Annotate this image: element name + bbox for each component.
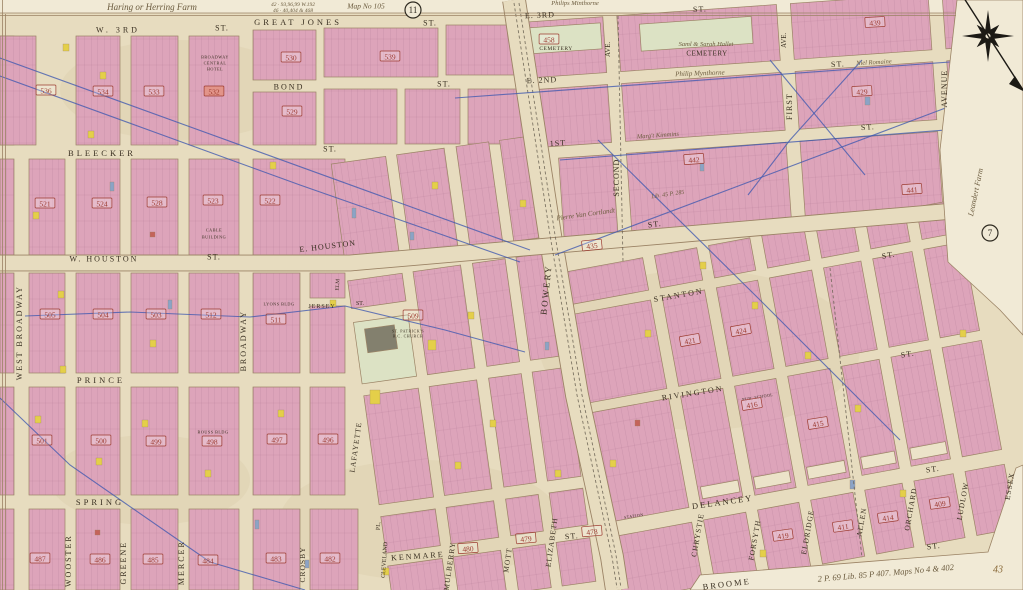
street-label: WOOSTER — [64, 534, 73, 587]
block-number: 487 — [30, 553, 50, 564]
street-label: AVENUE — [940, 70, 949, 108]
blue-lot-spot — [545, 342, 549, 350]
yellow-lot-spot — [96, 458, 102, 465]
street-label: BROADWAY — [239, 310, 248, 372]
svg-text:486: 486 — [94, 556, 106, 565]
farm-annotation: Haring or Herring Farm — [106, 2, 197, 12]
block-number: 497 — [267, 434, 287, 445]
svg-text:521: 521 — [39, 200, 51, 209]
yellow-lot-spot — [960, 330, 966, 337]
city-block — [253, 509, 300, 590]
street-label: WEST BROADWAY — [15, 285, 24, 380]
block-number: 509 — [403, 310, 423, 321]
yellow-lot-spot — [855, 405, 861, 412]
svg-text:528: 528 — [151, 199, 163, 208]
street-label: CROSBY — [298, 546, 307, 582]
yellow-lot-spot — [205, 470, 211, 477]
city-block — [446, 501, 499, 544]
svg-text:482: 482 — [324, 555, 336, 564]
street-label: GREENE — [119, 541, 128, 585]
svg-text:441: 441 — [906, 185, 918, 195]
farm-annotation: Saml & Sarah Hallet — [679, 41, 734, 48]
city-block — [189, 509, 239, 590]
svg-text:534: 534 — [97, 88, 109, 97]
street-label: ST. — [925, 464, 940, 475]
yellow-lot-spot — [60, 366, 66, 373]
svg-text:522: 522 — [264, 197, 276, 206]
svg-text:429: 429 — [856, 87, 868, 97]
yellow-lot-spot — [610, 460, 616, 467]
yellow-lot-spot — [428, 340, 436, 350]
city-block — [189, 159, 239, 255]
yellow-lot-spot — [370, 390, 380, 404]
blue-lot-spot — [865, 97, 870, 105]
svg-text:478: 478 — [586, 527, 598, 537]
svg-text:523: 523 — [207, 197, 219, 206]
building-label: CENTRAL — [204, 60, 227, 65]
city-block — [29, 273, 65, 373]
yellow-lot-spot — [700, 262, 706, 269]
street-label: ST. — [831, 59, 845, 69]
block-number: 534 — [93, 86, 113, 97]
block-number: 479 — [516, 532, 537, 544]
block-number: 529 — [282, 106, 302, 117]
svg-text:497: 497 — [271, 436, 283, 445]
street-label: ST. — [926, 541, 941, 552]
building-label: CABLE — [206, 227, 222, 232]
street-label: AVE. — [780, 32, 788, 47]
red-lot-spot — [150, 232, 155, 237]
block-number: 486 — [90, 554, 110, 565]
yellow-lot-spot — [150, 340, 156, 347]
blue-lot-spot — [110, 182, 114, 191]
street-label: E. 3RD — [525, 10, 555, 20]
svg-text:498: 498 — [206, 438, 218, 447]
city-block — [76, 273, 120, 373]
building-label: BUILDING — [202, 234, 226, 239]
farm-annotation: Philips Minthorne — [550, 0, 599, 7]
yellow-lot-spot — [33, 212, 39, 219]
building-label: CEMETERY — [539, 46, 572, 52]
building-label: ROUSS BLDG — [198, 429, 229, 434]
yellow-lot-spot — [805, 352, 811, 359]
block-number: 533 — [144, 86, 164, 97]
atlas-map[interactable]: 117W. 3RDST.GREAT JONESST.BONDST.BLEECKE… — [0, 0, 1023, 590]
street-label: PL. — [376, 521, 383, 530]
street-label: ST. — [565, 531, 579, 541]
svg-text:536: 536 — [40, 87, 52, 96]
svg-text:530: 530 — [285, 54, 297, 63]
block-number: 484 — [198, 555, 218, 566]
svg-text:529: 529 — [286, 108, 298, 117]
block-number: 485 — [143, 554, 163, 565]
street-label: GREAT JONES — [254, 17, 342, 27]
street-label: ST. — [323, 145, 337, 154]
city-block — [790, 0, 932, 59]
block-number: 480 — [458, 542, 478, 554]
svg-text:409: 409 — [934, 499, 947, 510]
block-number: 532 — [204, 86, 224, 97]
svg-text:505: 505 — [44, 311, 56, 320]
city-block — [381, 509, 441, 553]
building-label: R.C. CHURCH — [393, 333, 424, 338]
red-lot-spot — [95, 530, 100, 535]
street-label: MERCER — [177, 540, 186, 585]
svg-text:480: 480 — [462, 544, 474, 554]
street-label: FIRST — [785, 93, 794, 120]
block-number: 512 — [201, 309, 221, 320]
city-block — [310, 306, 345, 373]
svg-text:532: 532 — [208, 88, 220, 97]
yellow-lot-spot — [58, 291, 64, 298]
city-block — [131, 273, 178, 373]
yellow-lot-spot — [278, 410, 284, 417]
svg-text:458: 458 — [543, 36, 555, 45]
atlas-map-canvas[interactable]: 117W. 3RDST.GREAT JONESST.BONDST.BLEECKE… — [0, 0, 1023, 590]
svg-text:512: 512 — [205, 311, 217, 320]
yellow-lot-spot — [88, 131, 94, 138]
city-block — [131, 509, 178, 590]
block-number: 441 — [902, 183, 922, 195]
svg-text:504: 504 — [97, 311, 109, 320]
city-block — [556, 538, 596, 586]
svg-text:499: 499 — [150, 438, 162, 447]
block-number: 458 — [539, 34, 559, 45]
yellow-lot-spot — [555, 470, 561, 477]
svg-text:416: 416 — [746, 400, 759, 411]
block-number: 524 — [92, 198, 112, 209]
street-label: ST. — [437, 80, 451, 89]
street-label: BLEECKER — [68, 148, 136, 158]
block-number: 504 — [93, 309, 113, 320]
city-block — [506, 494, 544, 535]
svg-text:533: 533 — [148, 88, 160, 97]
svg-text:439: 439 — [869, 18, 881, 28]
block-number: 478 — [582, 525, 603, 537]
blue-lot-spot — [700, 163, 704, 171]
street-label: ST. — [693, 4, 707, 14]
building-label: BROADWAY — [201, 54, 229, 59]
block-number: 521 — [35, 198, 55, 209]
yellow-lot-spot — [35, 416, 41, 423]
yellow-lot-spot — [100, 72, 106, 79]
city-block — [622, 72, 786, 141]
svg-text:503: 503 — [150, 311, 162, 320]
street-label: SPRING — [76, 497, 124, 507]
blue-lot-spot — [168, 300, 172, 309]
farm-annotation: 46 · 40,404 & 468 — [273, 7, 313, 14]
yellow-lot-spot — [432, 182, 438, 189]
city-block — [324, 89, 397, 144]
city-block — [76, 509, 120, 590]
svg-text:511: 511 — [271, 316, 282, 325]
city-block — [559, 154, 619, 244]
svg-text:509: 509 — [407, 312, 419, 321]
block-number: 482 — [320, 553, 340, 564]
yellow-lot-spot — [752, 302, 758, 309]
handwritten-note: 43 — [993, 564, 1003, 575]
svg-text:500: 500 — [95, 437, 107, 446]
block-number: 483 — [266, 553, 286, 564]
block-number: 501 — [32, 435, 52, 446]
red-lot-spot — [635, 420, 640, 426]
plate-number: 11 — [409, 5, 418, 15]
block-number: 496 — [318, 434, 338, 445]
city-block — [453, 550, 507, 590]
yellow-lot-spot — [455, 462, 461, 469]
svg-text:419: 419 — [777, 531, 790, 542]
svg-text:442: 442 — [688, 155, 700, 165]
block-number: 439 — [865, 16, 885, 28]
building-label: HOTEL — [207, 66, 223, 71]
city-block — [253, 92, 316, 145]
street-label: ST. — [207, 253, 221, 262]
block-number: 503 — [146, 309, 166, 320]
street-label: ST. — [356, 301, 365, 307]
block-number: 499 — [146, 436, 166, 447]
block-number: 523 — [203, 195, 223, 206]
city-block — [189, 273, 239, 373]
street-label: ST. — [423, 19, 437, 28]
street-label: W. HOUSTON — [70, 255, 139, 264]
svg-text:524: 524 — [96, 200, 108, 209]
street-label: ST. — [215, 24, 229, 33]
yellow-lot-spot — [520, 200, 526, 207]
street-label: E. 2ND — [527, 75, 558, 85]
svg-text:484: 484 — [202, 557, 214, 566]
svg-text:415: 415 — [812, 419, 825, 430]
block-number: 429 — [852, 85, 872, 97]
yellow-lot-spot — [142, 420, 148, 427]
city-block — [405, 89, 460, 144]
svg-text:501: 501 — [36, 437, 48, 446]
svg-text:496: 496 — [322, 436, 334, 445]
block-number: 498 — [202, 436, 222, 447]
street-label: 1ST — [549, 138, 566, 148]
city-block — [468, 89, 525, 144]
blue-lot-spot — [352, 208, 356, 218]
block-number: 442 — [684, 153, 704, 165]
svg-text:487: 487 — [34, 555, 46, 564]
block-number: 536 — [36, 85, 56, 96]
svg-text:485: 485 — [147, 556, 159, 565]
svg-text:414: 414 — [882, 513, 895, 524]
svg-text:483: 483 — [270, 555, 282, 564]
block-number: 522 — [260, 195, 280, 206]
svg-text:411: 411 — [837, 522, 849, 532]
yellow-lot-spot — [468, 312, 474, 319]
blue-lot-spot — [255, 520, 259, 529]
street-label: BOND — [274, 83, 305, 92]
yellow-lot-spot — [645, 330, 651, 337]
yellow-lot-spot — [270, 162, 276, 169]
street-label: ST. — [647, 219, 662, 230]
street-label: ST. — [861, 122, 875, 132]
building-label: LYONS BLDG — [264, 301, 295, 306]
street-label: W. 3RD — [96, 26, 140, 35]
farm-annotation: Map No 105 — [346, 2, 385, 11]
blue-lot-spot — [410, 232, 414, 240]
block-number: 539 — [380, 51, 400, 62]
yellow-lot-spot — [490, 420, 496, 427]
block-number: 500 — [91, 435, 111, 446]
yellow-lot-spot — [63, 44, 69, 51]
plate-number: 7 — [988, 228, 993, 238]
street-label: JERSEY — [308, 304, 335, 310]
city-block — [310, 509, 358, 590]
street-label: AVE. — [604, 41, 612, 56]
svg-text:539: 539 — [384, 53, 396, 62]
farm-annotation: 42 · 93,96,99 W.192 — [271, 1, 315, 8]
street-label: SECOND — [612, 159, 621, 197]
yellow-lot-spot — [900, 490, 906, 497]
block-number: 511 — [266, 314, 286, 325]
building-label: CEMETERY — [686, 49, 727, 57]
svg-text:435: 435 — [586, 241, 598, 251]
svg-text:479: 479 — [520, 534, 532, 544]
yellow-lot-spot — [760, 550, 766, 557]
block-number: 505 — [40, 309, 60, 320]
street-label: PRINCE — [77, 375, 125, 385]
block-number: 528 — [147, 197, 167, 208]
city-block — [29, 509, 65, 590]
street-label: ELM — [335, 279, 342, 291]
block-number: 530 — [281, 52, 301, 63]
